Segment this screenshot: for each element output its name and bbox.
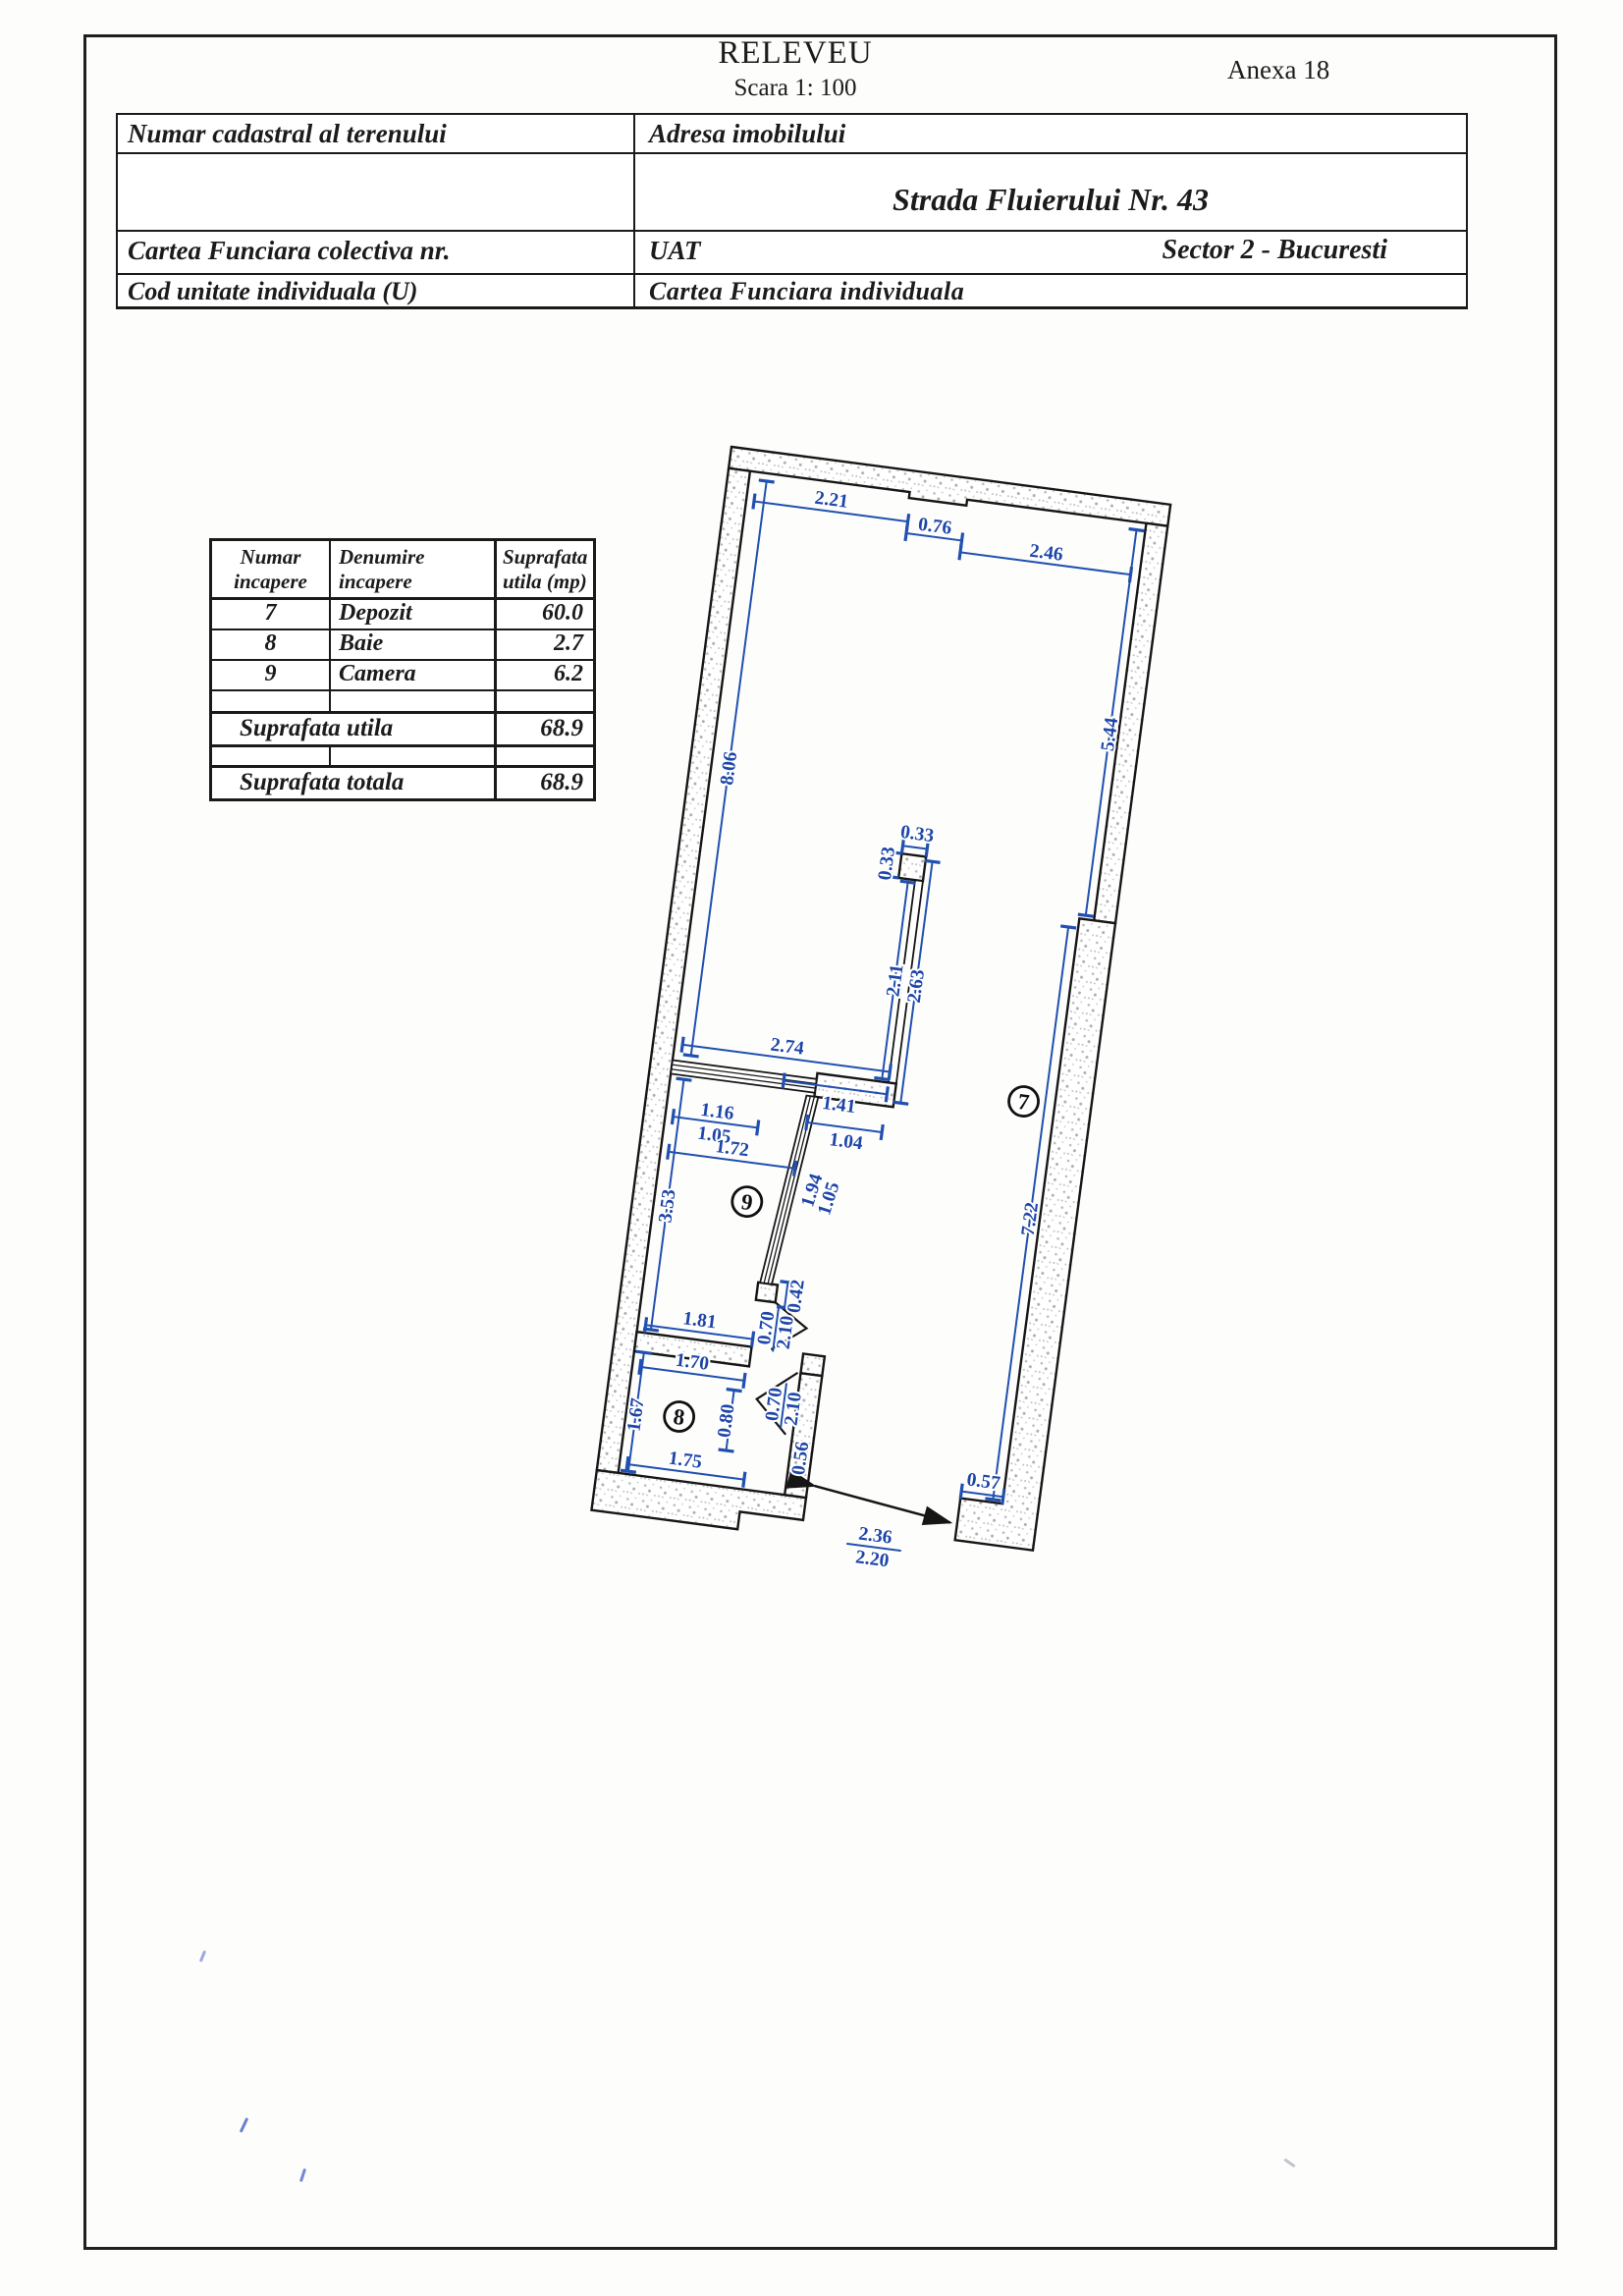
wall-left bbox=[597, 468, 750, 1473]
dim-label: 1.75 bbox=[668, 1449, 704, 1473]
dim-label: 2.10 bbox=[782, 1391, 806, 1427]
dim-label: 2.46 bbox=[1028, 541, 1064, 566]
dim-label: 2.63 bbox=[904, 968, 929, 1005]
col-header-suprafata: Suprafata utila (mp) bbox=[497, 541, 593, 597]
pillar bbox=[898, 853, 926, 881]
entrance-arrow bbox=[812, 1486, 952, 1522]
cadastral-label: Numar cadastral al terenului bbox=[118, 115, 635, 152]
room-area-table: Numar incapere Denumire incapere Suprafa… bbox=[209, 538, 596, 801]
wall-bottom-left bbox=[591, 1470, 806, 1538]
col-header-denumire: Denumire incapere bbox=[331, 541, 497, 597]
dim-label: 1.70 bbox=[675, 1350, 711, 1375]
document-title: RELEVEU bbox=[579, 35, 1011, 72]
cod-label: Cod unitate individuala (U) bbox=[118, 275, 635, 306]
dim-label: 1.04 bbox=[828, 1129, 864, 1154]
dimension-lines bbox=[621, 480, 1136, 1564]
dim-label: 2.21 bbox=[814, 488, 850, 513]
wall-stub-room9 bbox=[756, 1283, 778, 1302]
uat-label: UAT bbox=[649, 236, 701, 265]
room-table-header: Numar incapere Denumire incapere Suprafa… bbox=[212, 541, 593, 600]
dim-label: 1.81 bbox=[681, 1308, 718, 1333]
address-label: Adresa imobilului bbox=[635, 115, 1466, 152]
spacer-row bbox=[212, 747, 593, 768]
dim-label: 8.06 bbox=[717, 750, 741, 787]
dim-label: 2.11 bbox=[883, 963, 907, 999]
suprafata-utila-value: 68.9 bbox=[497, 714, 593, 744]
table-row: 9 Camera 6.2 bbox=[212, 661, 593, 691]
info-row-2: Strada Fluierului Nr. 43 bbox=[118, 152, 1466, 230]
dim-label: 0.33 bbox=[875, 846, 899, 882]
suprafata-totala-row: Suprafata totala 68.9 bbox=[212, 768, 593, 798]
floor-plan: 2.21 0.76 2.46 8.06 5.44 7.22 0.33 0.33 … bbox=[584, 417, 1232, 1586]
dim-label: 7.22 bbox=[1018, 1201, 1043, 1237]
dim-label: 2.10 bbox=[774, 1315, 798, 1351]
spacer-row bbox=[212, 691, 593, 714]
dim-label: 1.72 bbox=[714, 1136, 750, 1161]
suprafata-totala-value: 68.9 bbox=[497, 768, 593, 798]
dim-label: 2.36 bbox=[857, 1523, 893, 1548]
dim-label: 0.56 bbox=[788, 1440, 813, 1476]
cadastral-value-cell bbox=[118, 154, 635, 230]
dim-label: 1.67 bbox=[623, 1396, 648, 1433]
info-row-3: Cartea Funciara colectiva nr. UAT Sector… bbox=[118, 230, 1466, 273]
dim-label: 0.57 bbox=[965, 1469, 1001, 1494]
annex-label: Anexa 18 bbox=[1227, 55, 1424, 85]
address-value: Strada Fluierului Nr. 43 bbox=[635, 154, 1466, 230]
dim-label: 2.74 bbox=[769, 1034, 805, 1059]
dim-label: 0.80 bbox=[714, 1403, 738, 1440]
dim-label: 0.42 bbox=[784, 1279, 809, 1315]
dim-label: 5.44 bbox=[1098, 716, 1122, 752]
info-row-1: Numar cadastral al terenului Adresa imob… bbox=[118, 115, 1466, 152]
individuala-label: Cartea Funciara individuala bbox=[635, 275, 1466, 306]
dim-label: 1.41 bbox=[821, 1093, 857, 1118]
dim-label: 1.16 bbox=[699, 1100, 735, 1124]
suprafata-totala-label: Suprafata totala bbox=[212, 768, 497, 798]
dim-label: 2.20 bbox=[854, 1547, 891, 1571]
table-row: 8 Baie 2.7 bbox=[212, 630, 593, 661]
suprafata-utila-label: Suprafata utila bbox=[212, 714, 497, 744]
info-row-4: Cod unitate individuala (U) Cartea Funci… bbox=[118, 273, 1466, 306]
info-table: Numar cadastral al terenului Adresa imob… bbox=[116, 113, 1468, 309]
exterior-walls bbox=[591, 447, 1170, 1568]
col-header-numar: Numar incapere bbox=[212, 541, 331, 597]
dim-label: 0.76 bbox=[917, 515, 953, 539]
dim-label: 3.53 bbox=[655, 1188, 679, 1225]
scale-note: Scara 1: 100 bbox=[579, 75, 1011, 102]
uat-cell: UAT Sector 2 - Bucuresti bbox=[635, 232, 1466, 273]
suprafata-utila-row: Suprafata utila 68.9 bbox=[212, 714, 593, 747]
table-row: 7 Depozit 60.0 bbox=[212, 600, 593, 630]
colectiva-label: Cartea Funciara colectiva nr. bbox=[118, 232, 635, 273]
sector-value: Sector 2 - Bucuresti bbox=[1163, 235, 1387, 266]
window-band bbox=[671, 1061, 817, 1093]
dim-label: 0.33 bbox=[899, 822, 936, 847]
